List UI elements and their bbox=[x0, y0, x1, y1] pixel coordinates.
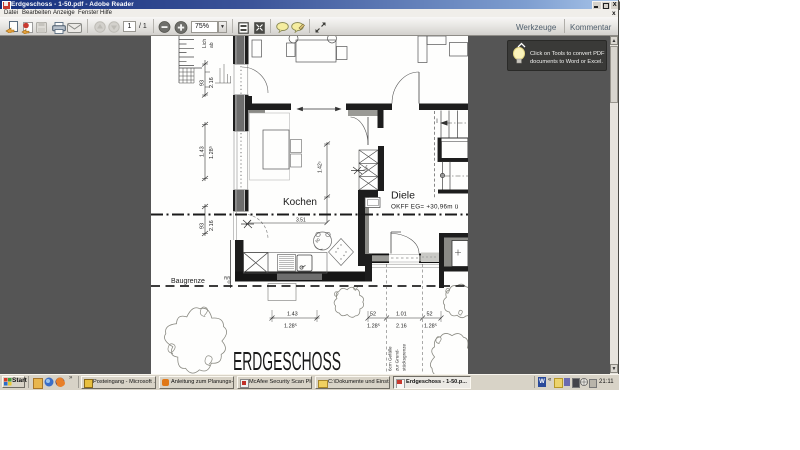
svg-text:Baugrenze: Baugrenze bbox=[171, 278, 205, 285]
svg-text:52: 52 bbox=[427, 312, 433, 318]
svg-text:6cm Gefälle: 6cm Gefälle bbox=[388, 346, 393, 371]
svg-text:2.16: 2.16 bbox=[209, 220, 215, 231]
svg-text:1.01: 1.01 bbox=[396, 312, 407, 318]
svg-text:ERDGESCHOSS: ERDGESCHOSS bbox=[233, 348, 341, 374]
svg-text:stücksgrenze: stücksgrenze bbox=[402, 343, 407, 371]
svg-text:1.28⁵: 1.28⁵ bbox=[424, 323, 437, 330]
svg-text:ab: ab bbox=[209, 42, 215, 48]
svg-text:1.43: 1.43 bbox=[200, 146, 206, 157]
svg-text:93: 93 bbox=[200, 223, 206, 229]
svg-text:1.28⁵: 1.28⁵ bbox=[284, 323, 297, 330]
svg-text:93: 93 bbox=[200, 80, 206, 86]
svg-text:2.16: 2.16 bbox=[396, 324, 407, 330]
svg-text:60: 60 bbox=[314, 236, 321, 243]
svg-text:Diele: Diele bbox=[391, 190, 415, 202]
svg-text:3.51: 3.51 bbox=[296, 218, 306, 224]
svg-text:1.43: 1.43 bbox=[287, 312, 298, 318]
svg-text:1.28⁵: 1.28⁵ bbox=[367, 323, 380, 330]
svg-text:1.28⁵: 1.28⁵ bbox=[208, 146, 215, 159]
svg-text:zur Grund-: zur Grund- bbox=[395, 349, 400, 371]
svg-text:Lich: Lich bbox=[202, 39, 208, 48]
svg-text:2.16: 2.16 bbox=[209, 77, 215, 88]
svg-text:RR: RR bbox=[224, 276, 231, 281]
svg-text:Kochen: Kochen bbox=[283, 196, 317, 208]
svg-text:1.42⁵: 1.42⁵ bbox=[318, 161, 324, 173]
svg-text:52: 52 bbox=[370, 312, 376, 318]
svg-text:OKFF EG= +30,96m ü: OKFF EG= +30,96m ü bbox=[391, 204, 459, 211]
